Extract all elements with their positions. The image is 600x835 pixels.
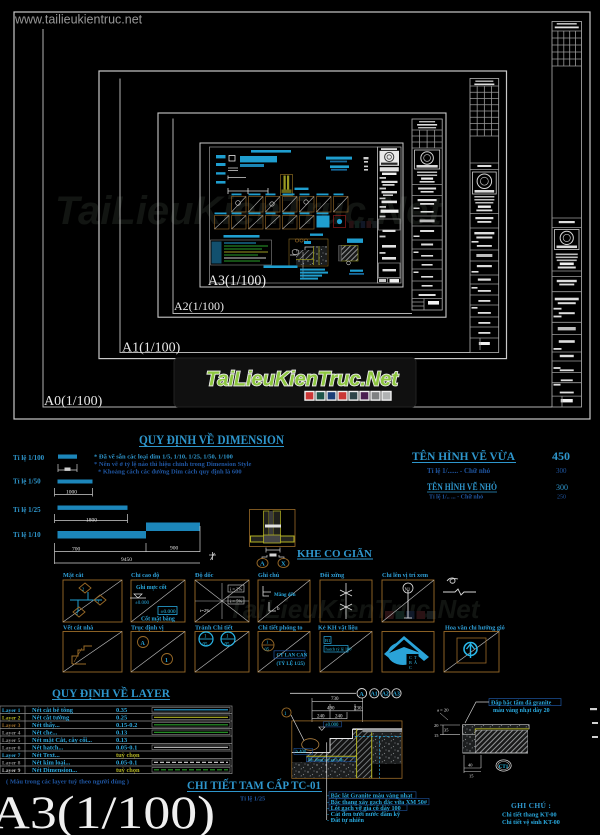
svg-text:±0.000: ±0.000 (161, 609, 176, 615)
svg-text:230: 230 (354, 707, 362, 712)
svg-text:2: 2 (82, 587, 84, 592)
svg-text:Nét thấy...: Nét thấy... (32, 722, 60, 729)
svg-text:300: 300 (556, 467, 567, 475)
svg-text:Đối xứng: Đối xứng (320, 572, 345, 579)
svg-text:Tỉ lệ 1/25: Tỉ lệ 1/25 (240, 796, 265, 803)
svg-text:TaiLieuKienTruc.Net: TaiLieuKienTruc.Net (228, 594, 481, 624)
svg-text:Tỉ lệ 1/10: Tỉ lệ 1/10 (13, 531, 41, 539)
svg-text:300: 300 (556, 483, 568, 492)
svg-text:QUY ĐỊNH VỀ LAYER: QUY ĐỊNH VỀ LAYER (52, 685, 170, 700)
svg-text:màu vàng nhạt dày 20: màu vàng nhạt dày 20 (493, 708, 550, 714)
svg-text:0.25: 0.25 (116, 715, 127, 722)
svg-text:Đắp bậc tấm đá granite: Đắp bậc tấm đá granite (491, 699, 552, 706)
svg-text:a = 20: a = 20 (437, 708, 449, 713)
svg-text:Măng đến: Măng đến (274, 593, 296, 598)
svg-text:A1: A1 (371, 692, 378, 698)
svg-text:Layer 7: Layer 7 (2, 753, 21, 759)
svg-text:Bậc thang xây gạch đặc: Bậc thang xây gạch đặc (308, 758, 344, 762)
svg-text:Layer 9: Layer 9 (2, 768, 21, 774)
svg-text:Tỉ lệ 1/50: Tỉ lệ 1/50 (13, 478, 41, 486)
svg-text:05: 05 (225, 643, 231, 648)
svg-text:240: 240 (335, 714, 343, 719)
svg-text:1800: 1800 (86, 518, 97, 524)
svg-text:hatch tỷ lệ 100: hatch tỷ lệ 100 (326, 647, 353, 652)
svg-text:Layer 6: Layer 6 (2, 745, 21, 751)
svg-text:Trục định vị: Trục định vị (131, 625, 164, 632)
svg-text:TÊN HÌNH VẼ NHỎ: TÊN HÌNH VẼ NHỎ (427, 482, 497, 492)
svg-text:Chi tiết vệ sinh KT-00: Chi tiết vệ sinh KT-00 (502, 819, 560, 826)
svg-text:tuỳ chọn: tuỳ chọn (116, 752, 140, 759)
svg-text:Nét Dimension...: Nét Dimension... (32, 767, 77, 774)
svg-text:Ghi mực cốt: Ghi mực cốt (136, 584, 167, 591)
svg-text:A1(1/100): A1(1/100) (122, 341, 181, 356)
svg-text:www.tailieukientruc.net: www.tailieukientruc.net (14, 13, 143, 27)
svg-text:Chỉ lên vị trí xem: Chỉ lên vị trí xem (382, 572, 429, 579)
svg-text:b.400: b.400 (296, 750, 307, 755)
svg-text:Chi tiết thang KT-00: Chi tiết thang KT-00 (502, 812, 557, 819)
svg-text:Layer 1: Layer 1 (2, 708, 21, 714)
svg-text:TÊN HÌNH VẼ VỪA: TÊN HÌNH VẼ VỪA (412, 449, 515, 463)
svg-text:Cốt mặt bằng: Cốt mặt bằng (141, 616, 175, 623)
svg-text:Vết cắt nhà: Vết cắt nhà (63, 625, 93, 632)
svg-text:A3: A3 (393, 692, 400, 698)
svg-text:0.35: 0.35 (116, 707, 127, 714)
svg-text:* Đã vẽ sẵn các loại dim 1/5,: * Đã vẽ sẵn các loại dim 1/5, 1/10, 1/25… (94, 454, 233, 461)
svg-text:Tỉ lệ 1/...... - Chữ nhỏ: Tỉ lệ 1/...... - Chữ nhỏ (427, 467, 491, 475)
svg-text:B1: B1 (325, 638, 331, 643)
svg-text:730: 730 (331, 697, 339, 702)
svg-text:250: 250 (557, 495, 566, 501)
svg-text:Layer 8: Layer 8 (2, 760, 21, 766)
svg-text:GHI CHÚ :: GHI CHÚ : (511, 800, 551, 810)
svg-text:Chỉ cao độ: Chỉ cao độ (131, 572, 159, 579)
svg-text:Layer 4: Layer 4 (2, 730, 21, 736)
svg-text:900: 900 (170, 546, 179, 552)
svg-text:TaiLieuKienTruc.Net: TaiLieuKienTruc.Net (206, 369, 399, 391)
svg-text:0.13: 0.13 (116, 730, 127, 737)
svg-text:Nét che...: Nét che... (32, 730, 58, 737)
svg-text:C: C (409, 665, 412, 670)
svg-text:KHE CO GIÃN: KHE CO GIÃN (297, 548, 372, 560)
svg-text:A3(1/100): A3(1/100) (0, 787, 215, 835)
svg-text:X: X (281, 561, 286, 568)
svg-text:0.15-0.2: 0.15-0.2 (116, 722, 137, 729)
svg-text:Nét hatch...: Nét hatch... (32, 745, 64, 752)
svg-text:Độ dốc: Độ dốc (195, 572, 214, 579)
svg-text:Nét kim loại...: Nét kim loại... (32, 760, 71, 767)
svg-text:1000: 1000 (66, 490, 77, 496)
svg-text:Layer 5: Layer 5 (2, 738, 21, 744)
svg-text:Mặt cắt: Mặt cắt (63, 572, 84, 579)
svg-text:240: 240 (317, 714, 325, 719)
svg-text:0.05-0.1: 0.05-0.1 (116, 745, 137, 752)
svg-text:CT LAN CAN: CT LAN CAN (277, 654, 308, 659)
svg-text:A: A (141, 641, 146, 647)
svg-text:i = 2%: i = 2% (230, 587, 242, 592)
svg-text:±0.000: ±0.000 (325, 723, 339, 728)
svg-text:Tỉ lệ 1/.. ... - Chữ nhỏ: Tỉ lệ 1/.. ... - Chữ nhỏ (429, 495, 483, 501)
svg-text:Kẻ KH vật liệu: Kẻ KH vật liệu (318, 625, 358, 632)
svg-text:A0(1/100): A0(1/100) (44, 394, 103, 409)
svg-text:A3(1/100): A3(1/100) (208, 273, 266, 289)
svg-text:2: 2 (76, 611, 78, 616)
svg-text:A: A (359, 691, 364, 698)
svg-text:Tỉ lệ 1/25: Tỉ lệ 1/25 (13, 506, 41, 514)
svg-text:Layer 2: Layer 2 (2, 715, 21, 721)
svg-text:CT1: CT1 (499, 765, 509, 770)
svg-text:A2(1/100): A2(1/100) (174, 299, 224, 313)
svg-text:1: 1 (165, 658, 168, 664)
svg-text:05: 05 (265, 647, 270, 652)
svg-text:Hoa văn chỉ hướng gió: Hoa văn chỉ hướng gió (445, 625, 505, 632)
svg-text:i = 5%: i = 5% (230, 599, 242, 604)
svg-text:A: A (260, 561, 265, 568)
svg-text:( Màu trong các layer tuỳ theo: ( Màu trong các layer tuỳ theo người dùn… (6, 779, 129, 786)
svg-text:Nét Text...: Nét Text... (32, 752, 60, 759)
svg-text:05: 05 (203, 643, 209, 648)
svg-text:- Đất tự nhiên: - Đất tự nhiên (327, 817, 364, 824)
svg-text:Ắ: Ắ (414, 659, 417, 665)
svg-text:Nét cắt bê tông: Nét cắt bê tông (32, 707, 74, 714)
svg-text:±0.000: ±0.000 (135, 601, 149, 606)
svg-text:Tỉ lệ 1/100: Tỉ lệ 1/100 (13, 454, 45, 462)
svg-text:0.05-0.1: 0.05-0.1 (116, 760, 137, 767)
svg-text:* Nên vẽ ở tỷ lệ nào thì hiệu: * Nên vẽ ở tỷ lệ nào thì hiệu chỉnh tron… (94, 461, 251, 468)
svg-text:Layer 3: Layer 3 (2, 723, 21, 729)
svg-text:Tránh Chi tiết: Tránh Chi tiết (195, 625, 234, 632)
svg-text:i=2%: i=2% (200, 608, 210, 613)
svg-text:Chi tiết phóng to: Chi tiết phóng to (258, 625, 303, 632)
svg-text:Ghi chú: Ghi chú (258, 572, 280, 579)
svg-text:Nét mặt Cắt, cây cối...: Nét mặt Cắt, cây cối... (32, 737, 92, 744)
svg-text:QUY ĐỊNH VỀ DIMENSION: QUY ĐỊNH VỀ DIMENSION (139, 432, 285, 447)
svg-text:A2: A2 (382, 692, 389, 698)
svg-text:0.13: 0.13 (116, 737, 127, 744)
svg-text:9450: 9450 (121, 557, 132, 563)
svg-text:N1: N1 (405, 587, 411, 592)
svg-text:450: 450 (552, 449, 570, 463)
svg-text:(TỶ LỆ 1/25): (TỶ LỆ 1/25) (277, 661, 306, 667)
svg-text:700: 700 (72, 547, 81, 553)
svg-text:Nét cắt tường: Nét cắt tường (32, 715, 70, 722)
svg-text:* Khoảng cách các đường Dim cá: * Khoảng cách các đường Dim cách quy địn… (98, 469, 242, 476)
svg-text:tuỳ chọn: tuỳ chọn (116, 767, 140, 774)
svg-text:490: 490 (327, 707, 335, 712)
svg-text:1: 1 (97, 599, 99, 604)
